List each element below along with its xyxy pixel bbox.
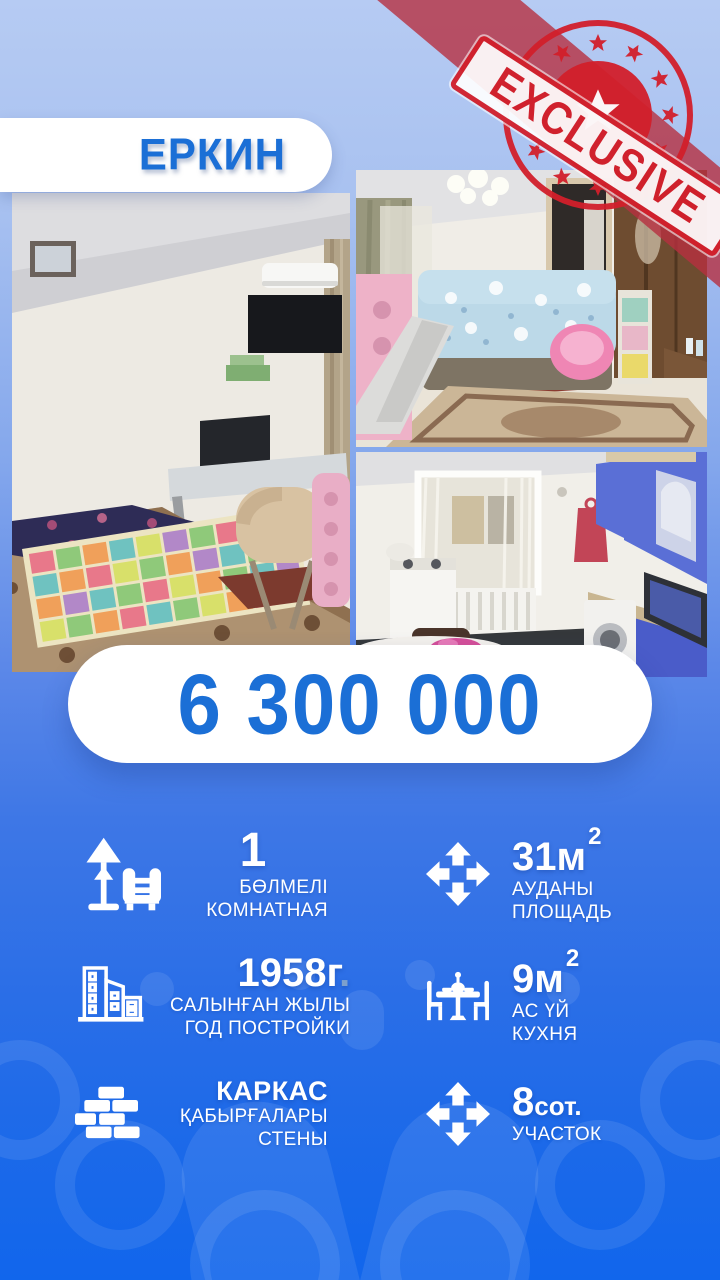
lamp-armchair-icon xyxy=(72,834,164,914)
walls-label-kz: ҚАБЫРҒАЛАРЫ xyxy=(170,1105,328,1128)
kitchen-value: 9м2 xyxy=(512,946,676,1000)
feature-year-built: 1958г. САЛЫНҒАН ЖЫЛЫ ГОД ПОСТРОЙКИ xyxy=(64,948,328,1044)
rooms-label-ru: КОМНАТНАЯ xyxy=(178,899,328,922)
area-value: 31м2 xyxy=(512,824,676,878)
living-room-illustration xyxy=(12,193,350,672)
price-pill: 6 300 000 xyxy=(68,645,652,763)
walls-value: КАРКАС xyxy=(170,1077,328,1105)
price-value: 6 300 000 xyxy=(177,654,542,754)
feature-plot: 8сот. УЧАСТОК xyxy=(420,1066,676,1162)
real-estate-flyer: ЕРКИН xyxy=(0,0,720,1280)
move-arrows-icon xyxy=(420,842,496,906)
area-label-kz: АУДАНЫ xyxy=(512,878,676,901)
feature-rooms: 1 БӨЛМЕЛІ КОМНАТНАЯ xyxy=(72,826,328,922)
living-room-photo xyxy=(12,193,350,672)
location-label: ЕРКИН xyxy=(139,130,286,180)
kitchen-label-ru: КУХНЯ xyxy=(512,1023,676,1046)
plot-label-ru: УЧАСТОК xyxy=(512,1123,676,1146)
feature-walls: КАРКАС ҚАБЫРҒАЛАРЫ СТЕНЫ xyxy=(64,1066,328,1162)
kitchen-photo xyxy=(356,452,707,677)
kitchen-illustration xyxy=(356,452,707,677)
dining-table-icon xyxy=(420,965,496,1027)
kitchen-label-kz: АС ҮЙ xyxy=(512,1000,676,1023)
buildings-icon xyxy=(64,963,156,1029)
year-label-ru: ГОД ПОСТРОЙКИ xyxy=(170,1017,350,1040)
move-arrows-icon xyxy=(420,1082,496,1146)
feature-area: 31м2 АУДАНЫ ПЛОЩАДЬ xyxy=(420,826,676,922)
exclusive-stamp: EXCLUSIVE xyxy=(498,15,698,215)
year-value: 1958г. xyxy=(170,952,350,994)
year-label-kz: САЛЫНҒАН ЖЫЛЫ xyxy=(170,994,350,1017)
plot-value: 8сот. xyxy=(512,1081,676,1123)
area-label-ru: ПЛОЩАДЬ xyxy=(512,901,676,924)
rooms-value: 1 xyxy=(178,826,328,876)
feature-kitchen: 9м2 АС ҮЙ КУХНЯ xyxy=(420,948,676,1044)
location-pill: ЕРКИН xyxy=(0,118,332,192)
bricks-icon xyxy=(64,1085,156,1143)
walls-label-ru: СТЕНЫ xyxy=(170,1128,328,1151)
rooms-label-kz: БӨЛМЕЛІ xyxy=(178,876,328,899)
